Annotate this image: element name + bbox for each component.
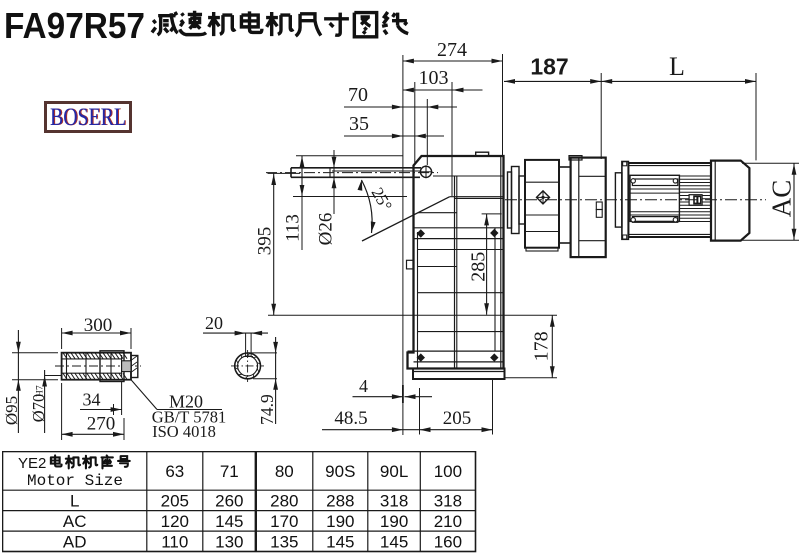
svg-text:160: 160 bbox=[434, 532, 462, 551]
svg-text:145: 145 bbox=[215, 512, 243, 531]
svg-text:395: 395 bbox=[255, 227, 276, 256]
svg-text:74.9: 74.9 bbox=[257, 394, 277, 425]
svg-text:135: 135 bbox=[270, 532, 298, 551]
svg-text:71: 71 bbox=[220, 462, 239, 481]
svg-text:103: 103 bbox=[419, 67, 449, 89]
svg-text:100: 100 bbox=[434, 462, 462, 481]
svg-text:ISO 4018: ISO 4018 bbox=[152, 422, 216, 441]
svg-text:110: 110 bbox=[161, 532, 188, 551]
svg-text:285: 285 bbox=[468, 252, 490, 282]
svg-text:20: 20 bbox=[205, 313, 223, 333]
svg-text:120: 120 bbox=[161, 512, 189, 531]
svg-text:318: 318 bbox=[380, 491, 408, 510]
svg-text:170: 170 bbox=[270, 512, 298, 531]
svg-text:210: 210 bbox=[434, 512, 462, 531]
svg-text:190: 190 bbox=[380, 512, 408, 531]
svg-text:288: 288 bbox=[326, 491, 354, 510]
svg-text:274: 274 bbox=[437, 39, 467, 61]
svg-text:Ø95: Ø95 bbox=[2, 396, 21, 425]
svg-text:260: 260 bbox=[215, 491, 243, 510]
svg-text:80: 80 bbox=[275, 462, 294, 481]
svg-text:130: 130 bbox=[215, 532, 243, 551]
svg-text:34: 34 bbox=[83, 390, 101, 410]
svg-text:280: 280 bbox=[270, 491, 298, 510]
svg-text:270: 270 bbox=[87, 414, 116, 435]
svg-text:AC: AC bbox=[63, 512, 87, 531]
svg-text:187: 187 bbox=[530, 54, 568, 80]
svg-text:L: L bbox=[70, 491, 79, 510]
svg-text:Ø26: Ø26 bbox=[316, 213, 337, 246]
svg-text:L: L bbox=[669, 52, 685, 81]
svg-text:90L: 90L bbox=[380, 462, 408, 481]
svg-text:Ø70: Ø70 bbox=[29, 394, 48, 422]
svg-text:113: 113 bbox=[283, 214, 304, 242]
svg-text:AD: AD bbox=[63, 532, 87, 551]
svg-text:48.5: 48.5 bbox=[334, 408, 367, 429]
svg-text:YE2: YE2 bbox=[18, 455, 46, 472]
svg-text:318: 318 bbox=[434, 491, 462, 510]
svg-text:H7: H7 bbox=[36, 385, 46, 397]
svg-text:205: 205 bbox=[443, 408, 472, 429]
svg-text:90S: 90S bbox=[325, 462, 355, 481]
svg-text:AC: AC bbox=[767, 180, 797, 218]
svg-text:4: 4 bbox=[359, 376, 368, 396]
svg-text:190: 190 bbox=[326, 512, 354, 531]
svg-text:145: 145 bbox=[380, 532, 408, 551]
svg-text:63: 63 bbox=[165, 462, 184, 481]
svg-text:300: 300 bbox=[84, 315, 113, 336]
svg-text:Motor Size: Motor Size bbox=[27, 472, 123, 490]
svg-text:145: 145 bbox=[326, 532, 354, 551]
svg-text:205: 205 bbox=[161, 491, 189, 510]
svg-text:35: 35 bbox=[349, 113, 369, 135]
svg-text:178: 178 bbox=[531, 331, 553, 361]
svg-text:70: 70 bbox=[348, 84, 368, 106]
